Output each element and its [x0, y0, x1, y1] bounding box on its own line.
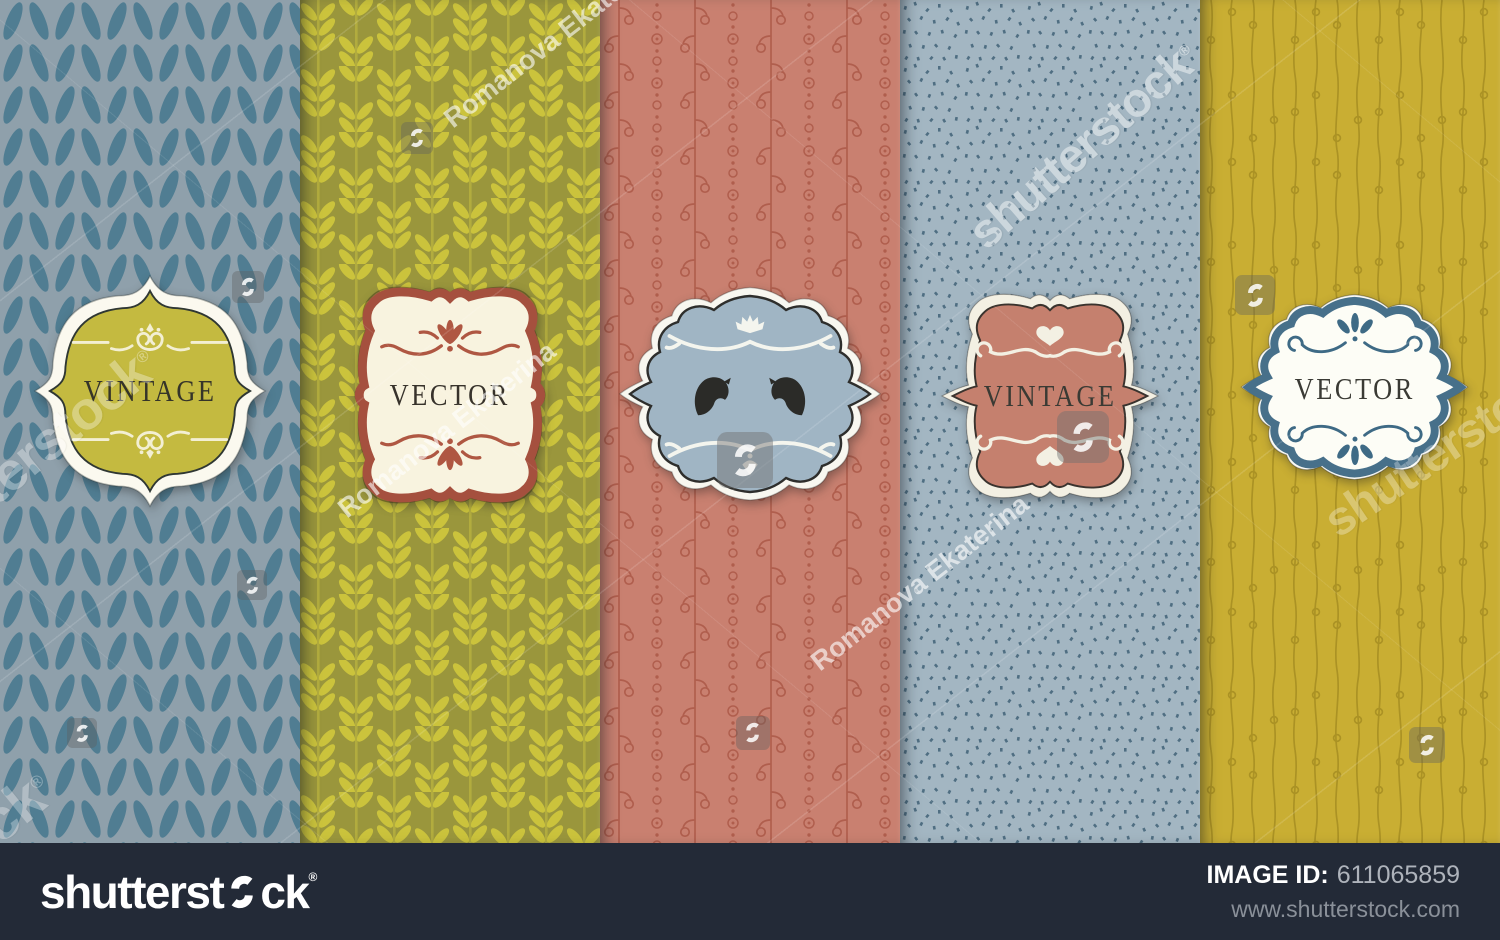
- shutterstock-camera-icon: [225, 875, 259, 909]
- curl-heart-ornament-top: [967, 322, 1133, 368]
- pattern-panels-row: VINTAGE: [0, 0, 1500, 843]
- curl-heart-ornament-bottom: [967, 424, 1133, 470]
- vintage-frame-2: VECTOR: [343, 288, 557, 502]
- swag-crown-ornament: [661, 313, 839, 359]
- scroll-ornament-bottom: [70, 419, 230, 461]
- logo-text-right: ck: [260, 869, 308, 915]
- shutterstock-footer-bar: shutterstck® IMAGE ID:611065859 www.shut…: [0, 843, 1500, 940]
- frame-label: VECTOR: [1294, 371, 1414, 407]
- panel-leaf-vine-olive: VECTOR: [300, 0, 600, 843]
- trefoil-ornament-top: [1281, 313, 1429, 361]
- frame-label: VECTOR: [390, 377, 510, 413]
- fan-ornament-top: [375, 317, 525, 367]
- panel-loop-vine-mustard: VECTOR: [1200, 0, 1500, 843]
- vintage-frame-5: VECTOR: [1247, 283, 1462, 495]
- watermarked-stock-image: VINTAGE: [0, 0, 1500, 940]
- vintage-frame-1: VINTAGE: [31, 272, 269, 510]
- frame-label: VINTAGE: [984, 378, 1117, 414]
- vintage-frame-3: [628, 290, 872, 502]
- image-id-value: 611065859: [1337, 861, 1460, 889]
- vintage-frame-4: VINTAGE: [936, 288, 1164, 504]
- scroll-ornament-top: [70, 321, 230, 363]
- shutterstock-logo: shutterstck®: [40, 869, 316, 915]
- trefoil-ornament-bottom: [1281, 417, 1429, 465]
- logo-text-left: shutterst: [40, 869, 223, 915]
- website-url: www.shutterstock.com: [1207, 893, 1461, 926]
- panel-speckle-blue: VINTAGE: [900, 0, 1200, 843]
- image-id-label: IMAGE ID:: [1207, 861, 1329, 889]
- love-birds-icon: [691, 371, 809, 421]
- footer-image-info: IMAGE ID:611065859 www.shutterstock.com: [1207, 857, 1461, 927]
- panel-herringbone-blue: VINTAGE: [0, 0, 300, 843]
- registered-mark: ®: [308, 871, 315, 883]
- swag-tulip-ornament: [661, 433, 839, 479]
- panel-swirl-salmon: [600, 0, 900, 843]
- frame-label: VINTAGE: [84, 373, 217, 409]
- fan-ornament-bottom: [375, 423, 525, 473]
